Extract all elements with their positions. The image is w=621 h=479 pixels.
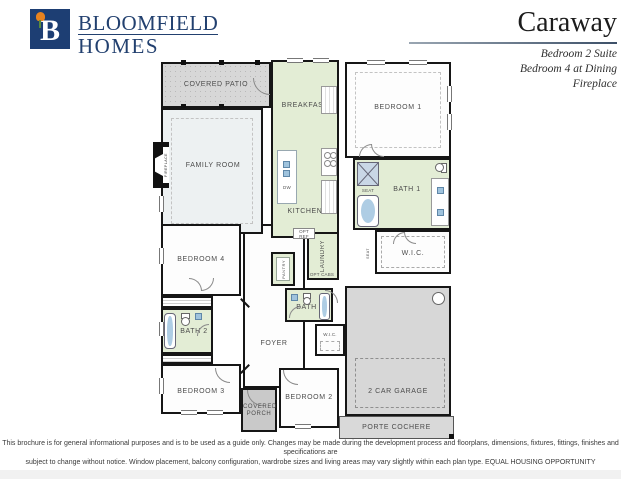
window: [181, 410, 197, 415]
sink-icon: [437, 209, 444, 216]
sink-icon: [283, 170, 290, 177]
window: [313, 58, 329, 63]
door-arc-garage: [325, 290, 338, 303]
range-icon: [321, 148, 337, 176]
shower-seat-label: SEAT: [357, 188, 379, 193]
sink-icon: [195, 313, 202, 320]
floorplan: FOYER COVERED PATIO FAMILY ROOM FIREPLAC…: [147, 56, 461, 442]
room-label-family-room: FAMILY ROOM: [173, 162, 253, 170]
room-wic2: W.I.C.: [315, 324, 345, 356]
sink-icon: [437, 187, 444, 194]
room-label-foyer: FOYER: [245, 340, 303, 348]
disclaimer-line1: This brochure is for general information…: [0, 439, 621, 458]
room-family-room: FAMILY ROOM: [161, 108, 263, 234]
toilet-icon: [435, 162, 447, 172]
fireplace-icon: FIREPLACE: [153, 142, 169, 188]
room-pantry: PANTRY: [271, 252, 295, 286]
window: [207, 410, 223, 415]
room-label-wic2: W.I.C.: [317, 332, 343, 337]
room-label-porte-cochere: PORTE COCHERE: [362, 424, 431, 432]
bloomfield-logo: B: [30, 9, 70, 49]
closet-shelving: [161, 354, 213, 364]
closet-shelving: [161, 296, 213, 308]
window: [409, 60, 427, 65]
opt-ref-box: OPT REF: [293, 228, 315, 239]
water-heater-icon: [432, 292, 445, 305]
patio-post: [219, 60, 224, 65]
room-label-covered-porch: COVERED PORCH: [243, 404, 275, 418]
brand-name: BLOOMFIELD HOMES: [78, 13, 218, 56]
sink-icon: [283, 161, 290, 168]
toilet-icon: [302, 293, 311, 304]
dishwasher-label: DW: [278, 185, 296, 190]
room-label-pantry: PANTRY: [281, 260, 286, 279]
window: [159, 322, 164, 336]
wic-seat-label: SEAT: [366, 248, 370, 259]
brand-name-line1: BLOOMFIELD: [78, 13, 218, 35]
room-label-bath1: BATH 1: [387, 186, 427, 194]
patio-post: [181, 60, 186, 65]
bathtub-icon: [164, 313, 176, 349]
garage-door-dash: [355, 358, 445, 408]
breakfast-cabinet: [321, 86, 337, 114]
room-porte-cochere: PORTE COCHERE: [339, 416, 454, 439]
brand-name-line2: HOMES: [78, 36, 218, 56]
room-label-bedroom4: BEDROOM 4: [163, 256, 239, 264]
family-room-ceiling-dash: [171, 118, 253, 224]
disclaimer: This brochure is for general information…: [0, 439, 621, 468]
room-label-bedroom3: BEDROOM 3: [163, 388, 239, 396]
opt-cabs-label: OPT CABS: [307, 272, 337, 277]
kitchen-cabinet: [321, 180, 337, 214]
room-label-laundry: LAUNDRY: [320, 240, 326, 272]
window: [159, 378, 164, 394]
window: [295, 424, 311, 429]
room-garage: 2 CAR GARAGE: [345, 286, 451, 416]
room-label-wic1: W.I.C.: [377, 250, 449, 258]
window: [159, 248, 164, 264]
vanity-bath1: [431, 178, 449, 226]
footer-band: [0, 470, 621, 479]
room-bedroom1: BEDROOM 1: [345, 62, 451, 158]
patio-post: [255, 60, 260, 65]
fireplace-label: FIREPLACE: [164, 153, 168, 177]
window: [367, 60, 385, 65]
tulip-icon: [36, 12, 45, 21]
sink-icon: [291, 294, 298, 301]
kitchen-island: DW: [277, 150, 297, 204]
title-divider: [409, 42, 617, 44]
room-label-bedroom2: BEDROOM 2: [281, 394, 337, 402]
toilet-icon: [180, 313, 190, 325]
window: [159, 196, 164, 212]
opt-ref-label: OPT REF: [294, 229, 314, 239]
bathtub-icon: [357, 195, 379, 227]
plan-title: Caraway: [409, 6, 617, 40]
window: [447, 114, 452, 130]
disclaimer-line2: subject to change without notice. Window…: [0, 458, 621, 468]
room-label-bedroom1: BEDROOM 1: [347, 104, 449, 112]
shower-icon: [357, 162, 379, 186]
window: [287, 58, 303, 63]
window: [447, 86, 452, 102]
